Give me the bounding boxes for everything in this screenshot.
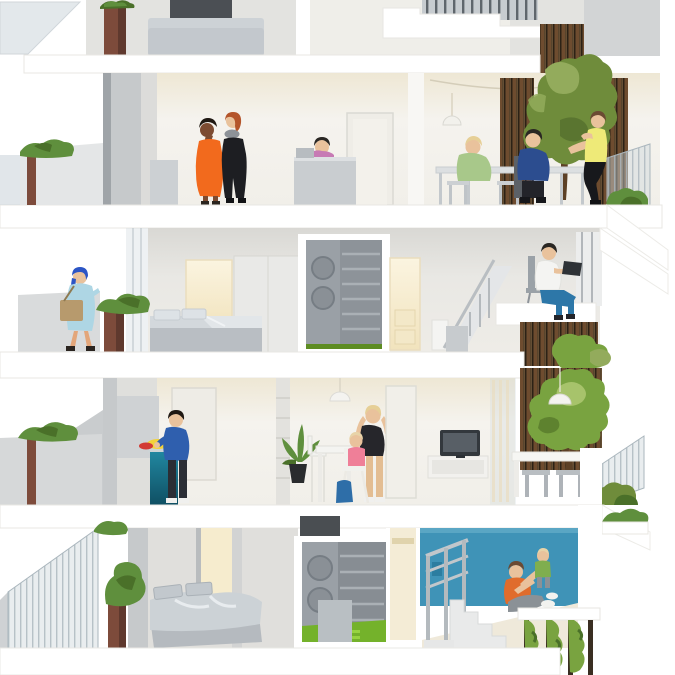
chair-back xyxy=(528,256,535,292)
bench-leg xyxy=(544,475,548,497)
blue-sweater xyxy=(163,427,189,461)
slab-bottom xyxy=(0,648,560,675)
front-partition xyxy=(318,600,352,642)
shoe xyxy=(541,600,555,608)
low-cabinet xyxy=(150,160,178,205)
table-leg xyxy=(581,173,584,205)
laundry-closet xyxy=(298,234,390,354)
chair-back xyxy=(308,436,312,454)
sofa xyxy=(148,28,264,56)
wall-cut xyxy=(296,0,310,56)
shoe xyxy=(238,198,246,203)
wall-panel xyxy=(111,73,141,205)
jeans-leg xyxy=(556,300,562,316)
door-panel xyxy=(395,310,415,326)
stool-leg xyxy=(449,185,452,205)
parapet xyxy=(0,434,102,505)
closet-green-floor xyxy=(306,344,382,349)
shoe xyxy=(178,498,189,503)
door-frame xyxy=(416,528,420,640)
pillow xyxy=(154,310,180,320)
bag xyxy=(60,300,83,321)
desk-box xyxy=(296,148,314,158)
shoe xyxy=(66,346,75,351)
shoe xyxy=(364,497,374,502)
lit-corridor xyxy=(388,528,420,640)
corridor-light xyxy=(392,538,414,544)
pillow xyxy=(186,582,213,596)
planter-shade xyxy=(119,602,126,648)
tv-stand xyxy=(456,455,465,458)
pillow xyxy=(182,309,206,319)
bed-platform xyxy=(150,325,262,352)
orange-dress xyxy=(196,139,224,197)
slab xyxy=(0,205,662,228)
post xyxy=(426,556,430,644)
bench-leg xyxy=(525,475,529,497)
post xyxy=(444,548,448,644)
jeans-leg xyxy=(568,298,574,315)
table-leg xyxy=(514,461,519,497)
planter-post xyxy=(27,438,36,505)
washer-door xyxy=(312,257,334,279)
planter-shade xyxy=(116,310,124,352)
planter-box-shade xyxy=(118,6,126,56)
shoe xyxy=(536,197,546,203)
leg xyxy=(179,460,187,499)
landing xyxy=(424,640,454,648)
laptop xyxy=(562,261,582,276)
shoe xyxy=(201,201,209,205)
glass-edge xyxy=(0,155,20,205)
building-section-illustration xyxy=(0,0,675,675)
white-shirt xyxy=(535,260,561,290)
glass-partition xyxy=(490,378,516,505)
shoe xyxy=(86,346,95,351)
legs xyxy=(522,181,544,198)
wall-cut xyxy=(408,73,424,205)
table-leg xyxy=(560,173,563,205)
bench xyxy=(522,470,550,475)
glass-wall xyxy=(126,228,148,352)
stool xyxy=(447,181,469,185)
door-frame xyxy=(386,528,390,640)
shoe xyxy=(546,593,558,600)
top-floor-wall-right xyxy=(584,0,660,56)
shoe xyxy=(212,201,220,205)
pot xyxy=(289,464,307,483)
open-door-panel xyxy=(386,386,416,498)
door-panel xyxy=(395,330,415,344)
leg xyxy=(168,460,176,499)
toddler-leg xyxy=(537,577,542,588)
edge-planter-box xyxy=(602,522,648,534)
shoe xyxy=(166,498,177,503)
washer-door xyxy=(308,556,332,580)
planter-post xyxy=(27,152,36,205)
teal-wall-top xyxy=(420,528,582,533)
head xyxy=(509,565,523,579)
table-leg xyxy=(318,453,322,502)
curtain-stripe xyxy=(499,380,502,502)
table-leg xyxy=(439,173,442,205)
red-dish xyxy=(139,443,153,450)
shoe xyxy=(520,197,530,203)
console-shelf xyxy=(432,460,484,474)
mezzanine-slab xyxy=(496,303,596,325)
wall-sliver xyxy=(0,592,8,648)
stair-base xyxy=(446,326,468,352)
leg xyxy=(376,456,383,498)
garden-post xyxy=(588,620,593,675)
torso xyxy=(517,148,549,181)
wall-edge xyxy=(103,73,111,205)
stool-leg xyxy=(464,185,467,205)
chair-seat xyxy=(342,466,366,471)
stool-leg xyxy=(499,185,502,205)
wall-edge xyxy=(103,378,117,505)
shoe xyxy=(566,314,575,319)
door-panel xyxy=(353,119,387,205)
bench xyxy=(556,470,584,475)
dark-header xyxy=(300,516,340,538)
scarf xyxy=(225,130,240,139)
shoe xyxy=(590,200,601,205)
fascia-beam xyxy=(518,608,600,620)
toddler-green-top xyxy=(535,561,551,579)
tv-screen xyxy=(443,433,477,452)
curtain-stripe xyxy=(492,380,495,502)
curtain-stripe xyxy=(506,380,509,502)
shoe xyxy=(375,497,385,502)
utility-closet xyxy=(294,536,394,648)
child-pink-top xyxy=(348,447,365,466)
dryer-door xyxy=(312,287,334,309)
shoe xyxy=(226,198,234,203)
floor-4 xyxy=(103,54,660,205)
toddler-leg xyxy=(545,577,550,588)
desk xyxy=(294,157,356,205)
slab-top xyxy=(24,55,540,73)
hand xyxy=(154,442,160,448)
slab-3-2 xyxy=(0,352,524,378)
section-canvas xyxy=(0,0,675,675)
bench-leg xyxy=(559,475,563,497)
blue-bag xyxy=(336,480,353,503)
shoe xyxy=(554,315,563,320)
